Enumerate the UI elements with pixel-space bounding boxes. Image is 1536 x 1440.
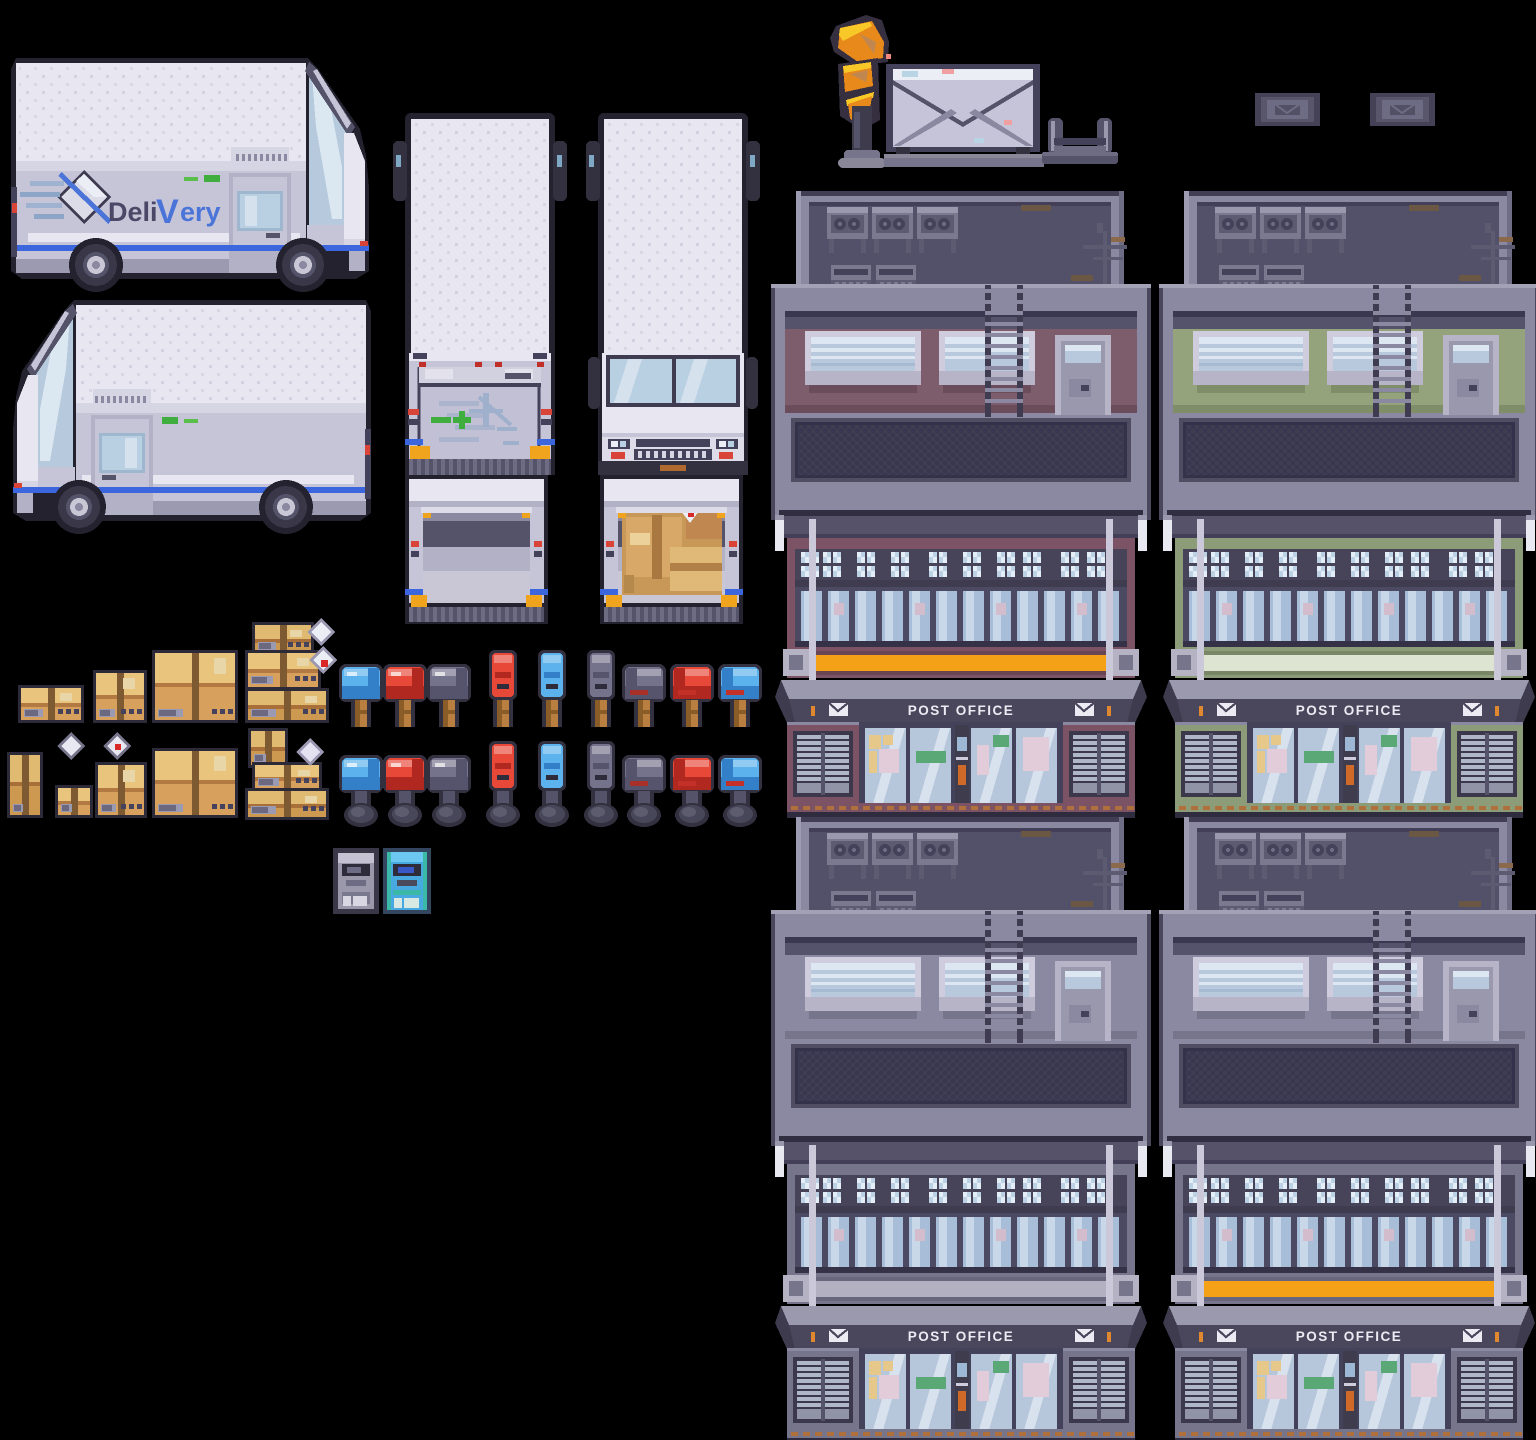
svg-text:POST OFFICE: POST OFFICE <box>908 703 1015 718</box>
svg-text:V: V <box>156 193 179 231</box>
svg-text:POST OFFICE: POST OFFICE <box>1296 1329 1403 1344</box>
svg-text:Deli: Deli <box>108 197 158 227</box>
svg-text:ery: ery <box>180 197 221 227</box>
svg-text:POST OFFICE: POST OFFICE <box>908 1329 1015 1344</box>
svg-text:POST OFFICE: POST OFFICE <box>1296 703 1403 718</box>
